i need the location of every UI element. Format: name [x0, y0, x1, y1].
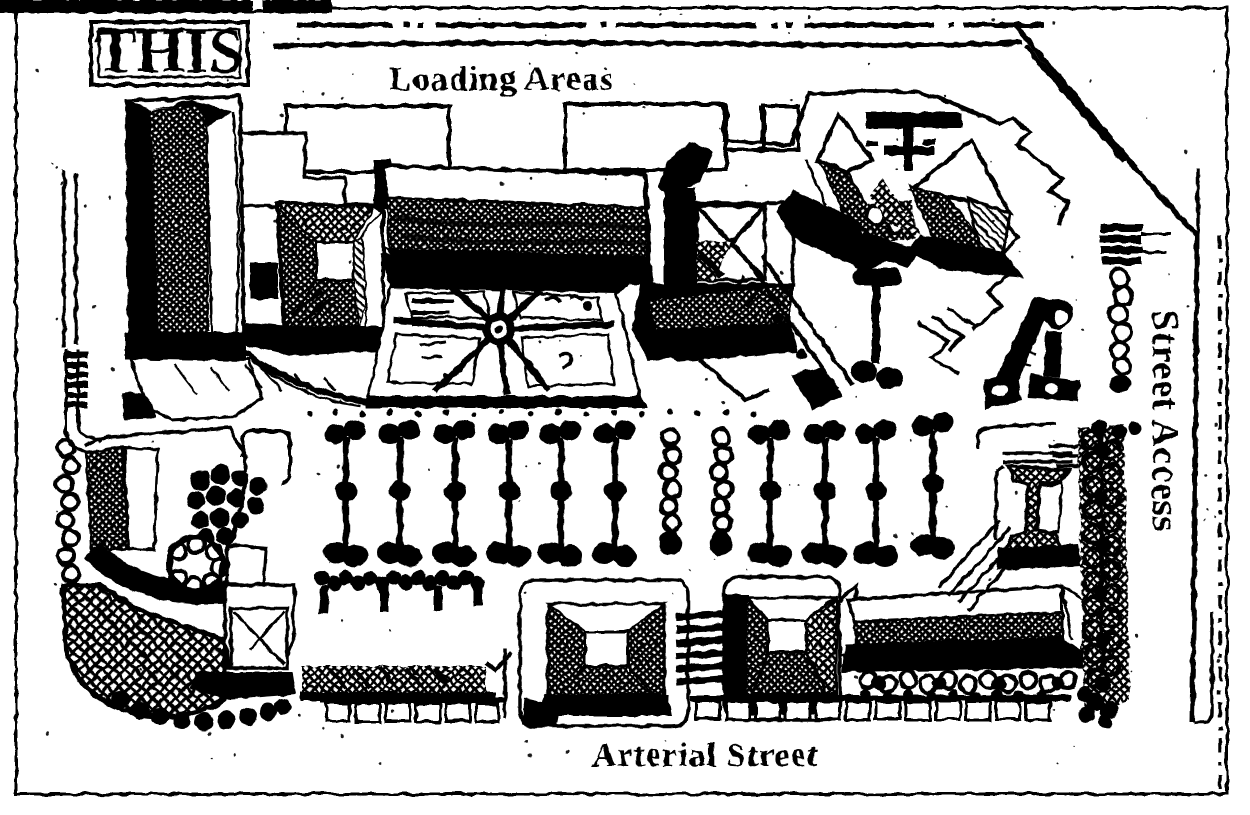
svg-text:Street Access: Street Access — [1144, 310, 1186, 532]
svg-text:Arterial Street: Arterial Street — [592, 737, 819, 774]
svg-text:Loading Areas: Loading Areas — [389, 61, 614, 98]
svg-text:THIS: THIS — [95, 18, 243, 86]
